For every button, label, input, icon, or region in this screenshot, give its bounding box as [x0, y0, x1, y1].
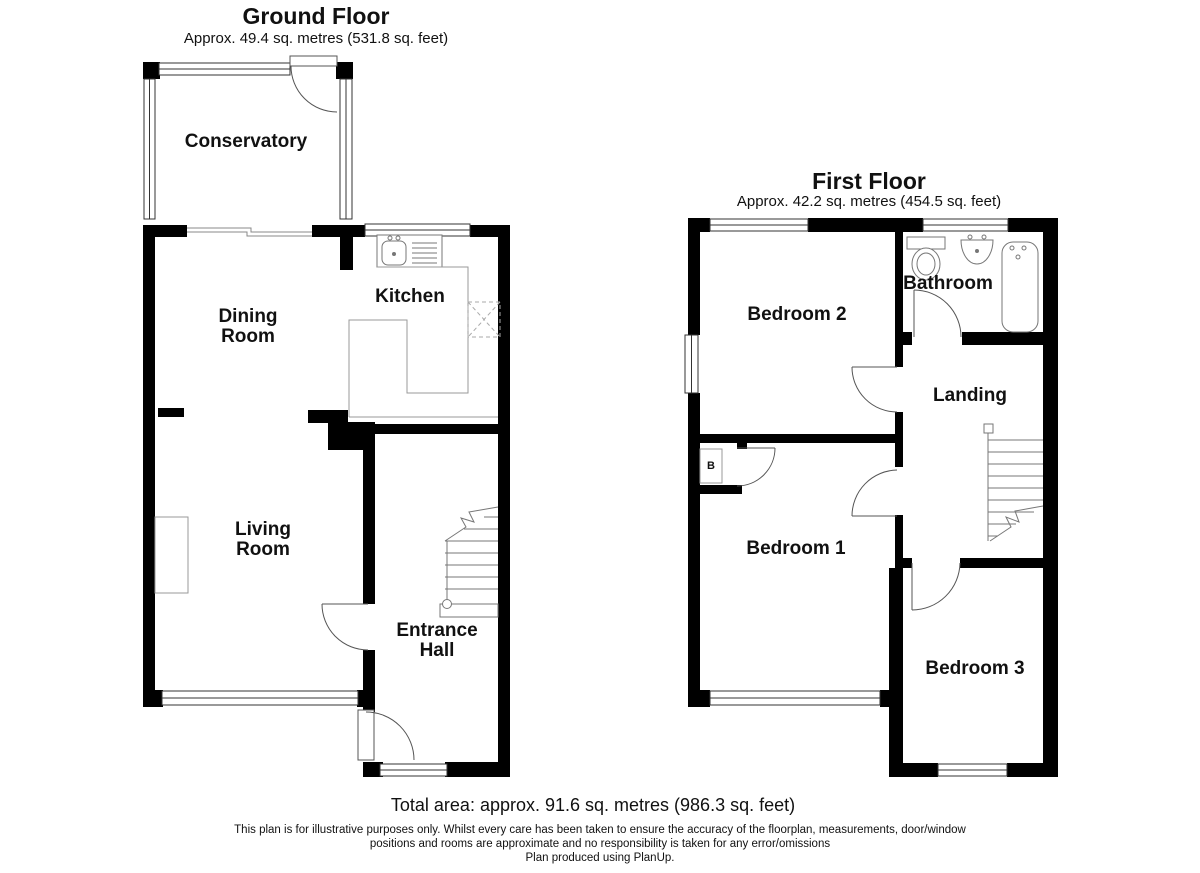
room-label-bedroom-3: Bedroom 3	[910, 659, 1040, 679]
bedroom3-door	[912, 563, 960, 610]
first-floor-windows	[685, 219, 1008, 776]
room-label-dining-room: Dining Room	[203, 307, 293, 347]
appliance-space	[468, 302, 500, 337]
basin-icon	[961, 235, 993, 264]
conservatory-opening-threshold	[187, 228, 312, 236]
disclaimer-line-3: Plan produced using PlanUp.	[150, 851, 1050, 865]
room-label-bedroom-1: Bedroom 1	[731, 539, 861, 559]
cupboard-door	[737, 448, 775, 486]
bathroom-door	[914, 290, 961, 337]
ground-staircase-icon	[440, 507, 498, 617]
first-floor-plan	[685, 218, 1058, 777]
first-floor-staircase-icon	[984, 424, 1043, 541]
total-area-text: Total area: approx. 91.6 sq. metres (986…	[293, 795, 893, 815]
boiler-cupboard-label: B	[701, 460, 721, 472]
ground-floor-plan	[143, 56, 510, 777]
conservatory-door	[290, 56, 337, 112]
floorplan-drawing	[0, 0, 1200, 873]
room-label-living-room: Living Room	[218, 520, 308, 560]
disclaimer-line-2: positions and rooms are approximate and …	[150, 837, 1050, 851]
room-label-bathroom: Bathroom	[883, 274, 1013, 294]
room-label-kitchen: Kitchen	[350, 287, 470, 307]
first-floor-subtitle: Approx. 42.2 sq. metres (454.5 sq. feet)	[669, 194, 1069, 210]
ground-floor-subtitle: Approx. 49.4 sq. metres (531.8 sq. feet)	[116, 31, 516, 47]
disclaimer-line-1: This plan is for illustrative purposes o…	[150, 823, 1050, 837]
room-label-conservatory: Conservatory	[146, 132, 346, 152]
first-floor-title: First Floor	[669, 169, 1069, 193]
living-room-door	[322, 604, 368, 650]
floorplan-page: Ground Floor Approx. 49.4 sq. metres (53…	[0, 0, 1200, 873]
ground-floor-title: Ground Floor	[116, 4, 516, 28]
front-door	[358, 710, 414, 760]
room-label-bedroom-2: Bedroom 2	[732, 305, 862, 325]
room-label-landing: Landing	[910, 386, 1030, 406]
chimney-breast	[155, 517, 188, 593]
kitchen-sink-icon	[377, 235, 442, 267]
bedroom1-door	[852, 470, 897, 516]
room-label-entrance-hall: Entrance Hall	[382, 621, 492, 661]
bedroom2-door	[852, 367, 897, 412]
